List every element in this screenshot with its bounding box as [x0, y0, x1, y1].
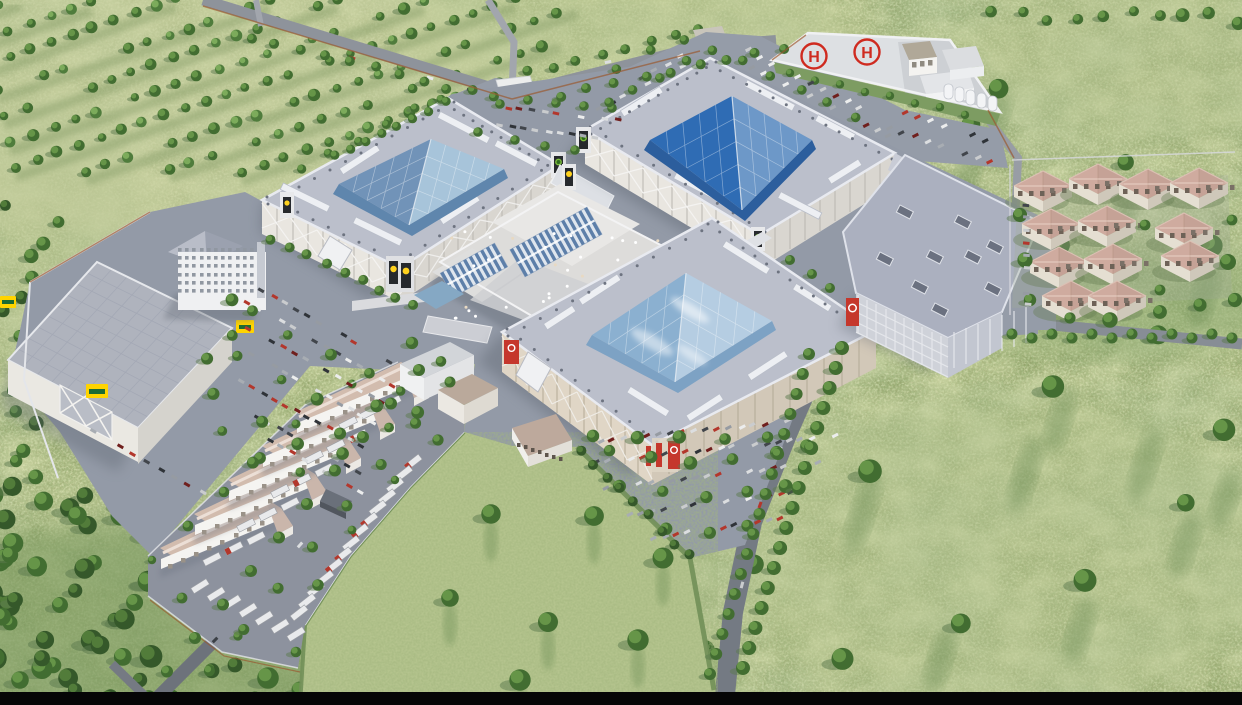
svg-text:H: H — [808, 49, 820, 66]
svg-text:H: H — [861, 45, 873, 62]
